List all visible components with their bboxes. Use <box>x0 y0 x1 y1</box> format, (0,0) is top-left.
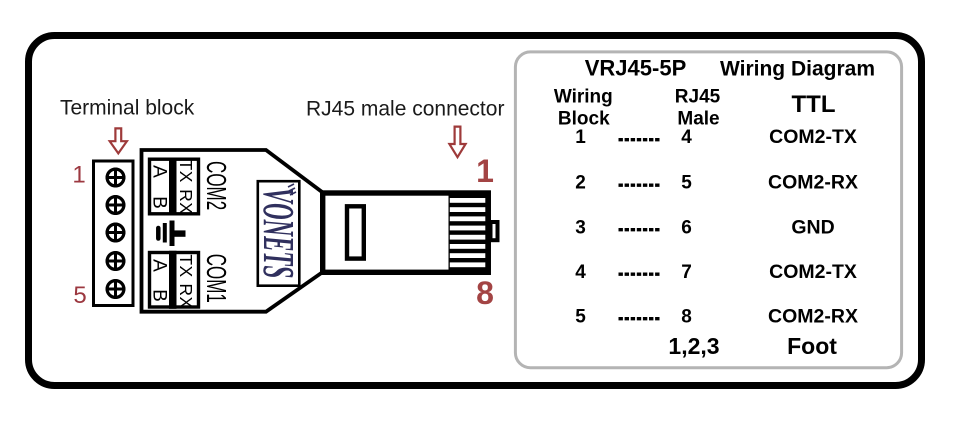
svg-text:Terminal block: Terminal block <box>60 97 195 120</box>
svg-text:7: 7 <box>681 262 692 283</box>
svg-text:VONETS: VONETS <box>254 188 304 279</box>
svg-text:GND: GND <box>791 217 834 239</box>
svg-text:COM1: COM1 <box>201 254 232 303</box>
svg-text:TTL: TTL <box>792 91 836 118</box>
svg-text:TX: TX <box>176 160 196 183</box>
svg-text:6: 6 <box>681 218 692 239</box>
svg-text:Wiring Diagram: Wiring Diagram <box>720 58 875 81</box>
svg-text:1: 1 <box>476 153 494 189</box>
svg-text:RJ45 male connector: RJ45 male connector <box>306 98 504 121</box>
svg-text:5: 5 <box>73 282 86 309</box>
svg-text:1: 1 <box>72 161 85 188</box>
svg-text:4: 4 <box>681 127 692 148</box>
svg-text:5: 5 <box>575 307 586 328</box>
svg-text:COM2: COM2 <box>201 161 232 210</box>
svg-text:COM2-TX: COM2-TX <box>769 126 857 148</box>
svg-text:2: 2 <box>575 173 586 194</box>
svg-text:5: 5 <box>681 173 692 194</box>
svg-text:TX: TX <box>176 254 196 277</box>
svg-text:Wiring: Wiring <box>554 87 613 108</box>
svg-text:3: 3 <box>575 218 586 239</box>
svg-text:COM2-RX: COM2-RX <box>768 172 858 194</box>
svg-text:A: A <box>149 165 170 178</box>
svg-text:B: B <box>149 196 170 209</box>
svg-text:1,2,3: 1,2,3 <box>668 333 719 359</box>
svg-text:8: 8 <box>476 275 494 311</box>
svg-text:4: 4 <box>575 262 586 283</box>
svg-text:COM2-TX: COM2-TX <box>769 261 857 283</box>
svg-text:8: 8 <box>681 307 692 328</box>
svg-text:B: B <box>149 289 170 302</box>
svg-text:Foot: Foot <box>787 333 837 359</box>
svg-text:1: 1 <box>575 127 586 148</box>
svg-text:COM2-RX: COM2-RX <box>768 306 858 328</box>
svg-text:RX: RX <box>176 189 196 214</box>
svg-text:RJ45: RJ45 <box>675 87 721 108</box>
svg-text:VRJ45-5P: VRJ45-5P <box>585 56 687 81</box>
svg-text:RX: RX <box>176 283 196 308</box>
svg-text:A: A <box>149 259 170 272</box>
